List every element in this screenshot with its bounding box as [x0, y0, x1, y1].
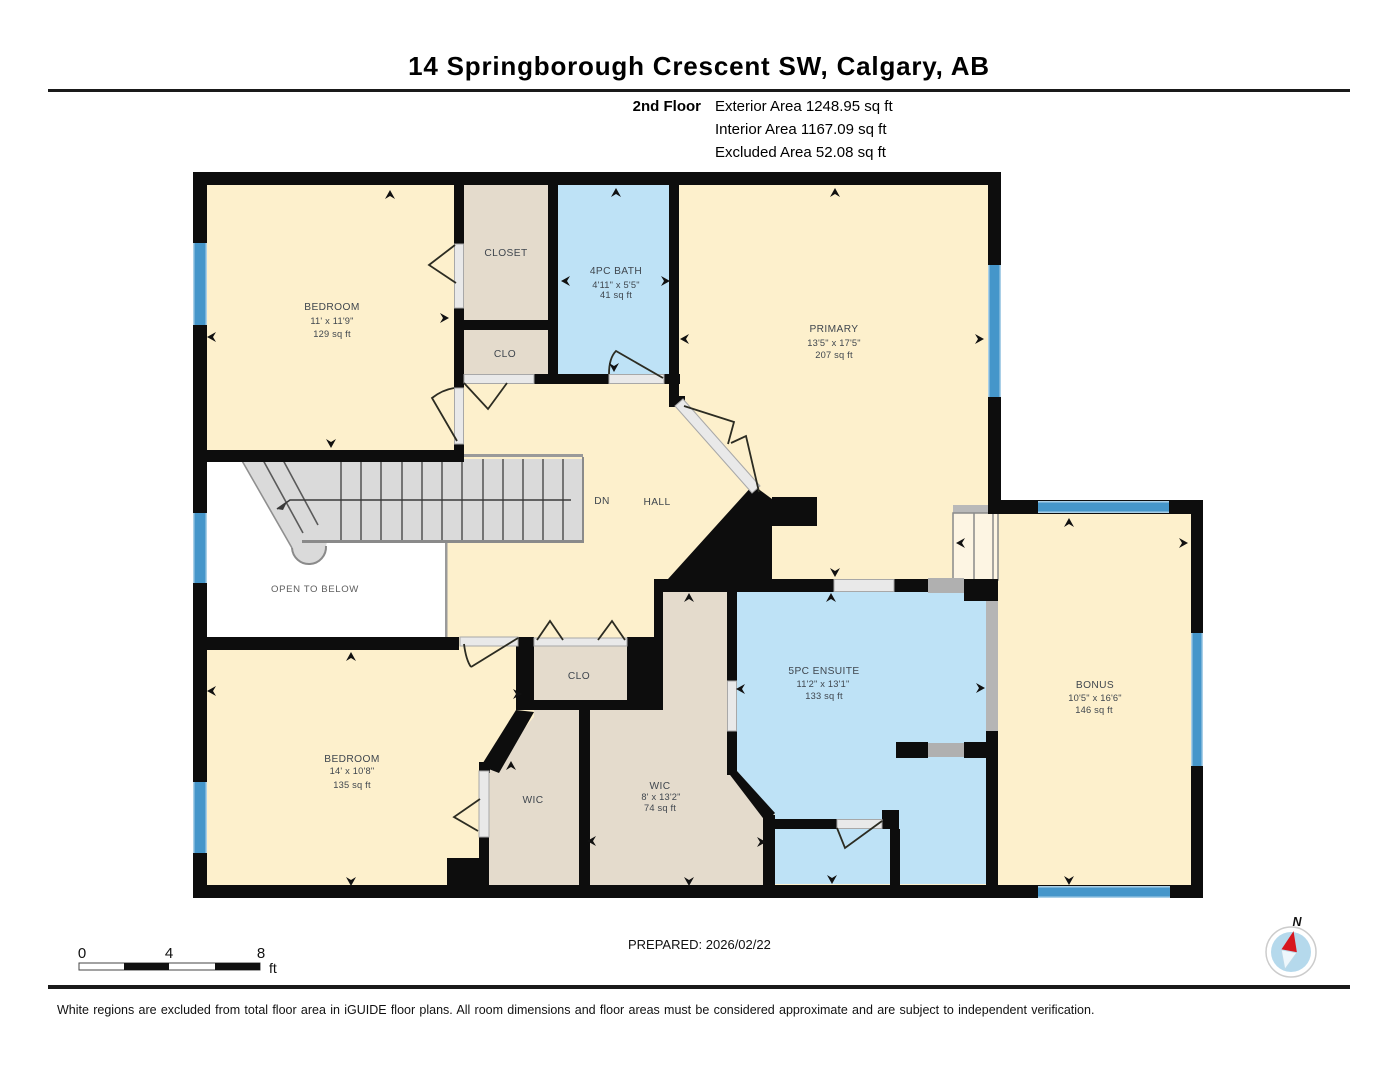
svg-text:CLO: CLO	[494, 349, 516, 360]
svg-text:11'2" x 13'1": 11'2" x 13'1"	[797, 679, 850, 689]
svg-text:135 sq ft: 135 sq ft	[333, 780, 371, 790]
svg-text:White regions are excluded fro: White regions are excluded from total fl…	[57, 1003, 1094, 1017]
svg-text:8' x 13'2": 8' x 13'2"	[641, 792, 680, 802]
svg-text:129 sq ft: 129 sq ft	[313, 329, 351, 339]
svg-text:BEDROOM: BEDROOM	[304, 302, 359, 313]
svg-text:8: 8	[257, 945, 265, 962]
svg-text:2nd Floor: 2nd Floor	[633, 98, 701, 115]
svg-text:41 sq ft: 41 sq ft	[600, 290, 632, 300]
svg-text:DN: DN	[594, 496, 610, 507]
svg-text:13'5" x 17'5": 13'5" x 17'5"	[807, 338, 861, 348]
svg-text:OPEN TO BELOW: OPEN TO BELOW	[271, 584, 359, 595]
svg-text:CLO: CLO	[568, 671, 590, 682]
svg-text:146 sq ft: 146 sq ft	[1075, 705, 1113, 715]
svg-text:5PC ENSUITE: 5PC ENSUITE	[788, 666, 859, 677]
svg-text:4'11" x 5'5": 4'11" x 5'5"	[592, 280, 640, 290]
svg-text:4: 4	[165, 945, 173, 962]
svg-text:74 sq ft: 74 sq ft	[644, 803, 676, 813]
svg-text:11' x 11'9": 11' x 11'9"	[310, 316, 353, 326]
svg-text:WIC: WIC	[522, 795, 543, 806]
svg-text:HALL: HALL	[643, 497, 670, 508]
svg-text:0: 0	[78, 945, 86, 962]
svg-text:Interior Area 1167.09 sq ft: Interior Area 1167.09 sq ft	[715, 121, 887, 138]
svg-text:Exterior Area 1248.95 sq ft: Exterior Area 1248.95 sq ft	[715, 98, 893, 115]
svg-text:ft: ft	[269, 960, 277, 976]
svg-text:PRIMARY: PRIMARY	[809, 324, 858, 335]
svg-text:WIC: WIC	[649, 781, 670, 792]
svg-text:CLOSET: CLOSET	[484, 248, 527, 259]
svg-text:4PC BATH: 4PC BATH	[590, 266, 642, 277]
svg-text:14' x 10'8": 14' x 10'8"	[330, 766, 375, 776]
svg-text:BONUS: BONUS	[1076, 680, 1114, 691]
svg-text:PREPARED: 2026/02/22: PREPARED: 2026/02/22	[628, 937, 771, 952]
svg-text:207 sq ft: 207 sq ft	[815, 350, 853, 360]
svg-text:Excluded Area 52.08 sq ft: Excluded Area 52.08 sq ft	[715, 144, 887, 161]
svg-text:133 sq ft: 133 sq ft	[805, 691, 843, 701]
svg-text:10'5" x 16'6": 10'5" x 16'6"	[1068, 693, 1122, 703]
svg-text:BEDROOM: BEDROOM	[324, 754, 379, 765]
svg-text:N: N	[1292, 915, 1302, 929]
svg-text:14 Springborough Crescent SW,: 14 Springborough Crescent SW, Calgary, A…	[408, 51, 990, 81]
